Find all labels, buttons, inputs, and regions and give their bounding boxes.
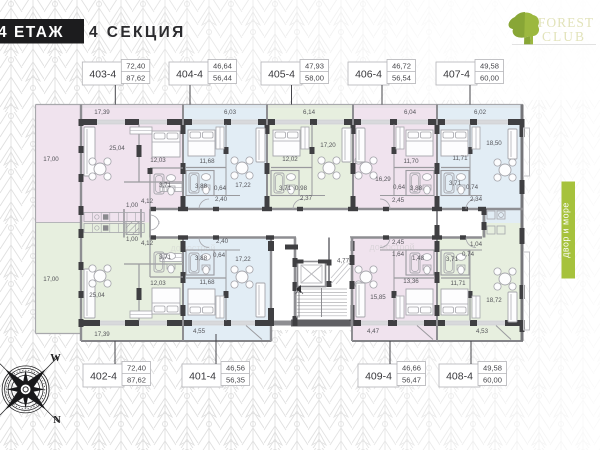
svg-text:11,68: 11,68: [199, 279, 215, 286]
svg-text:11,70: 11,70: [403, 158, 419, 165]
svg-text:FOREST: FOREST: [538, 15, 594, 30]
svg-text:72,40: 72,40: [127, 364, 146, 373]
svg-text:17,22: 17,22: [235, 182, 251, 189]
svg-text:13,36: 13,36: [403, 278, 419, 285]
svg-text:401-4: 401-4: [189, 371, 216, 383]
svg-text:0,74: 0,74: [466, 184, 479, 191]
svg-text:25,04: 25,04: [109, 145, 125, 152]
svg-text:6,14: 6,14: [303, 109, 316, 116]
svg-text:6,02: 6,02: [474, 109, 487, 116]
svg-text:407-4: 407-4: [443, 69, 470, 81]
svg-text:403-4: 403-4: [89, 69, 116, 81]
svg-text:404-4: 404-4: [176, 69, 203, 81]
svg-text:2,45: 2,45: [392, 239, 405, 246]
svg-text:W: W: [50, 353, 61, 364]
svg-text:4 СЕКЦИЯ: 4 СЕКЦИЯ: [89, 24, 186, 41]
svg-text:17,00: 17,00: [43, 156, 59, 163]
svg-text:15,85: 15,85: [370, 294, 386, 301]
svg-text:1,00: 1,00: [126, 236, 139, 243]
svg-text:409-4: 409-4: [365, 371, 392, 383]
svg-text:2,40: 2,40: [215, 196, 228, 203]
svg-text:0,64: 0,64: [214, 185, 227, 192]
svg-text:2,34: 2,34: [470, 196, 483, 203]
svg-text:402-4: 402-4: [90, 371, 117, 383]
svg-text:12,03: 12,03: [150, 157, 166, 164]
svg-text:17,20: 17,20: [320, 142, 336, 149]
svg-text:17,22: 17,22: [235, 256, 251, 263]
svg-text:16,29: 16,29: [375, 176, 391, 183]
svg-text:3,71: 3,71: [446, 256, 459, 263]
svg-text:двор и море: двор и море: [561, 202, 571, 258]
svg-text:46,56: 46,56: [226, 364, 245, 373]
svg-text:406-4: 406-4: [355, 69, 382, 81]
svg-text:60,00: 60,00: [483, 376, 502, 385]
svg-text:408-4: 408-4: [446, 371, 473, 383]
svg-text:46,64: 46,64: [213, 62, 232, 71]
svg-text:60,00: 60,00: [480, 74, 499, 83]
svg-text:56,54: 56,54: [392, 74, 411, 83]
svg-text:4,77: 4,77: [337, 258, 350, 265]
svg-text:49,58: 49,58: [480, 62, 499, 71]
svg-text:домострой: домострой: [170, 243, 215, 253]
svg-text:2,45: 2,45: [392, 197, 405, 204]
svg-text:6,04: 6,04: [404, 109, 417, 116]
svg-text:1,00: 1,00: [126, 202, 139, 209]
svg-text:2,40: 2,40: [216, 238, 229, 245]
svg-text:2,37: 2,37: [300, 195, 313, 202]
svg-text:56,35: 56,35: [226, 376, 245, 385]
svg-text:18,72: 18,72: [486, 297, 502, 304]
svg-text:6,03: 6,03: [224, 109, 237, 116]
svg-text:49,58: 49,58: [483, 364, 502, 373]
svg-text:N: N: [53, 415, 61, 426]
svg-text:3,88: 3,88: [195, 183, 208, 190]
svg-text:3,71: 3,71: [159, 182, 172, 189]
svg-text:0,74: 0,74: [462, 251, 475, 258]
svg-text:12,03: 12,03: [150, 280, 166, 287]
svg-text:405-4: 405-4: [268, 69, 295, 81]
svg-text:11,71: 11,71: [452, 155, 468, 162]
svg-text:4,12: 4,12: [141, 240, 154, 247]
svg-text:12,02: 12,02: [282, 156, 298, 163]
svg-text:56,47: 56,47: [402, 376, 421, 385]
svg-text:46,72: 46,72: [392, 62, 411, 71]
svg-text:0,64: 0,64: [213, 252, 226, 259]
svg-text:58,00: 58,00: [305, 74, 324, 83]
svg-text:3,88: 3,88: [410, 185, 423, 192]
svg-text:17,39: 17,39: [94, 109, 110, 116]
svg-text:87,62: 87,62: [127, 376, 146, 385]
svg-text:3,71: 3,71: [159, 254, 172, 261]
svg-text:0,98: 0,98: [295, 185, 308, 192]
svg-text:56,44: 56,44: [213, 74, 232, 83]
svg-text:4 ЕТАЖ: 4 ЕТАЖ: [0, 24, 64, 41]
svg-text:3,88: 3,88: [195, 255, 208, 262]
svg-text:17,00: 17,00: [43, 276, 59, 283]
svg-text:1,04: 1,04: [470, 241, 483, 248]
svg-text:4,55: 4,55: [193, 328, 206, 335]
svg-text:3,71: 3,71: [449, 180, 462, 187]
svg-text:4,53: 4,53: [476, 328, 489, 335]
svg-text:1,64: 1,64: [392, 251, 405, 258]
svg-text:3,71: 3,71: [279, 185, 292, 192]
svg-text:4,12: 4,12: [141, 198, 154, 205]
svg-text:11,71: 11,71: [450, 280, 466, 287]
svg-text:18,50: 18,50: [486, 140, 502, 147]
svg-text:17,39: 17,39: [94, 331, 110, 338]
svg-text:47,93: 47,93: [305, 62, 324, 71]
svg-text:4,47: 4,47: [367, 328, 380, 335]
svg-text:CLUB: CLUB: [542, 29, 586, 44]
svg-text:87,62: 87,62: [126, 74, 145, 83]
svg-text:72,40: 72,40: [126, 62, 145, 71]
svg-text:46,66: 46,66: [402, 364, 421, 373]
svg-text:1,48: 1,48: [412, 255, 425, 262]
svg-text:11,68: 11,68: [199, 158, 215, 165]
svg-text:0,64: 0,64: [393, 184, 406, 191]
svg-text:25,04: 25,04: [89, 292, 105, 299]
